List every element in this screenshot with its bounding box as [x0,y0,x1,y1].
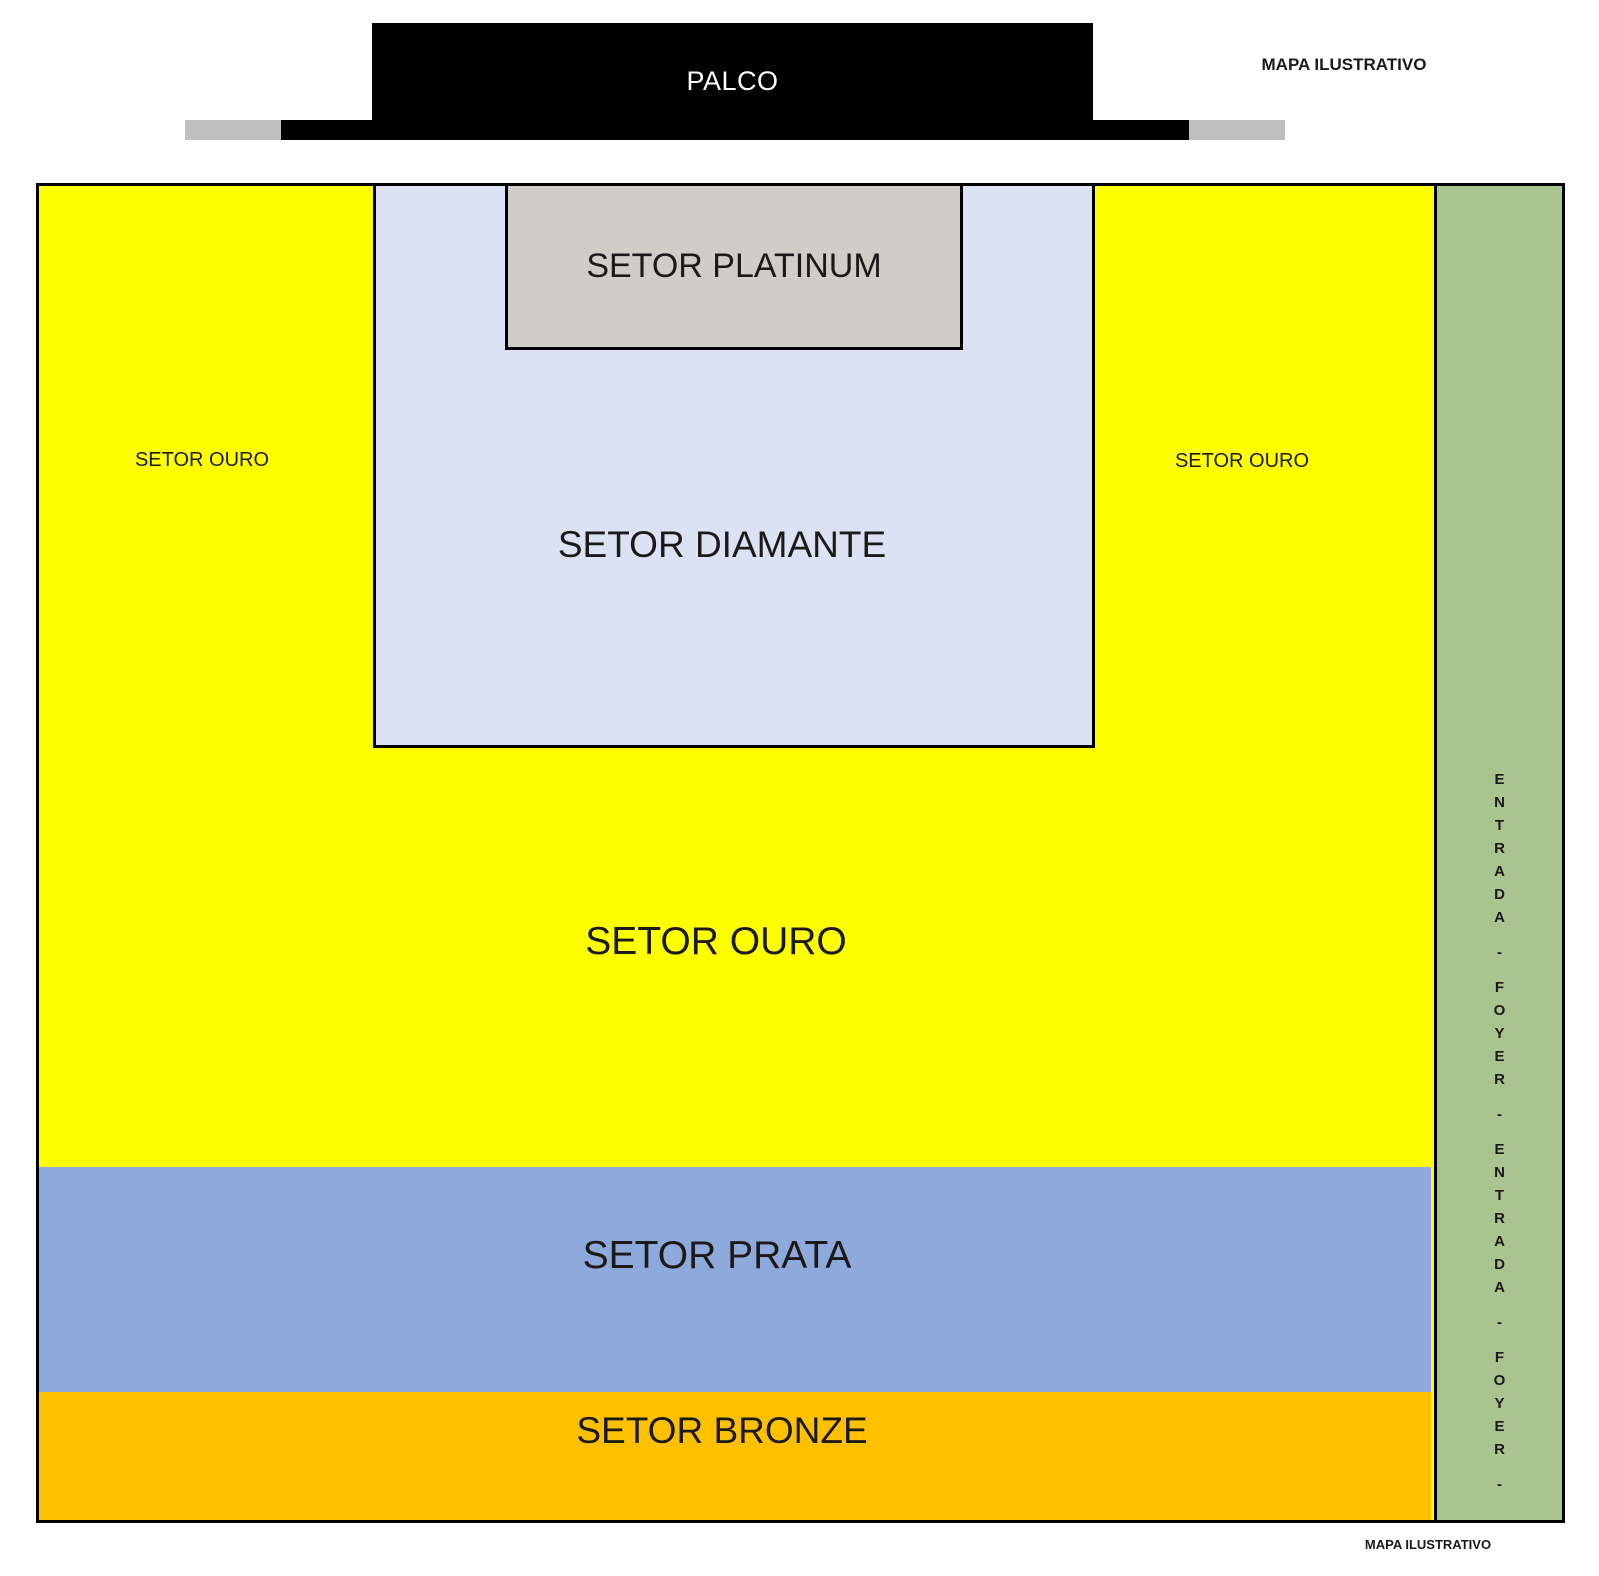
entrance-letter: F [1494,976,1506,999]
sector-prata-label: SETOR PRATA [517,1233,917,1279]
entrance-letter: A [1494,1276,1506,1299]
entrance-letter: N [1494,791,1506,814]
sector-ouro-label-main: SETOR OURO [516,919,916,965]
stage-apron-left [185,120,281,140]
entrance-letter: O [1494,999,1506,1022]
entrance-letter: E [1494,1415,1506,1438]
entrance-letter: - [1494,1103,1506,1126]
entrance-letter: - [1494,1311,1506,1334]
entrance-letter: A [1494,1230,1506,1253]
stage-box: PALCO [372,23,1093,140]
sector-ouro-label-left: SETOR OURO [102,448,302,472]
entrance-letter: R [1494,837,1506,860]
sector-diamante-label: SETOR DIAMANTE [522,523,922,567]
entrance-letter: O [1494,1369,1506,1392]
entrance-letter: D [1494,883,1506,906]
entrance-letter: - [1494,1473,1506,1496]
entrance-letter: Y [1494,1022,1506,1045]
stage-apron-right [1189,120,1285,140]
entrance-letter: R [1494,1207,1506,1230]
sector-prata-region [39,1167,1431,1392]
stage-label: PALCO [686,66,778,97]
entrance-letter: - [1494,941,1506,964]
sector-platinum-region: SETOR PLATINUM [505,183,963,350]
entrance-letter: A [1494,860,1506,883]
entrance-letter: D [1494,1253,1506,1276]
sector-ouro-label-right: SETOR OURO [1142,449,1342,473]
venue-map-canvas: PALCO MAPA ILUSTRATIVO SETOR PLATINUM EN… [0,0,1599,1576]
entrance-letter: F [1494,1346,1506,1369]
entrance-letter: T [1494,814,1506,837]
entrance-letter: N [1494,1161,1506,1184]
entrance-letter: E [1494,768,1506,791]
entrance-letter: T [1494,1184,1506,1207]
map-top-watermark: MAPA ILUSTRATIVO [1244,54,1444,76]
entrance-letter: R [1494,1438,1506,1461]
entrance-letter: A [1494,906,1506,929]
entrance-vertical-text: ENTRADA-FOYER-ENTRADA-FOYER- [1494,768,1506,1508]
venue-map: SETOR PLATINUM ENTRADA-FOYER-ENTRADA-FOY… [36,183,1565,1523]
sector-platinum-label: SETOR PLATINUM [586,247,881,286]
entrance-letter: E [1494,1045,1506,1068]
entrance-foyer-strip: ENTRADA-FOYER-ENTRADA-FOYER- [1434,186,1562,1520]
entrance-letter: R [1494,1068,1506,1091]
entrance-letter: E [1494,1138,1506,1161]
map-bottom-watermark: MAPA ILUSTRATIVO [1328,1537,1528,1552]
entrance-letter: Y [1494,1392,1506,1415]
sector-bronze-label: SETOR BRONZE [522,1409,922,1453]
